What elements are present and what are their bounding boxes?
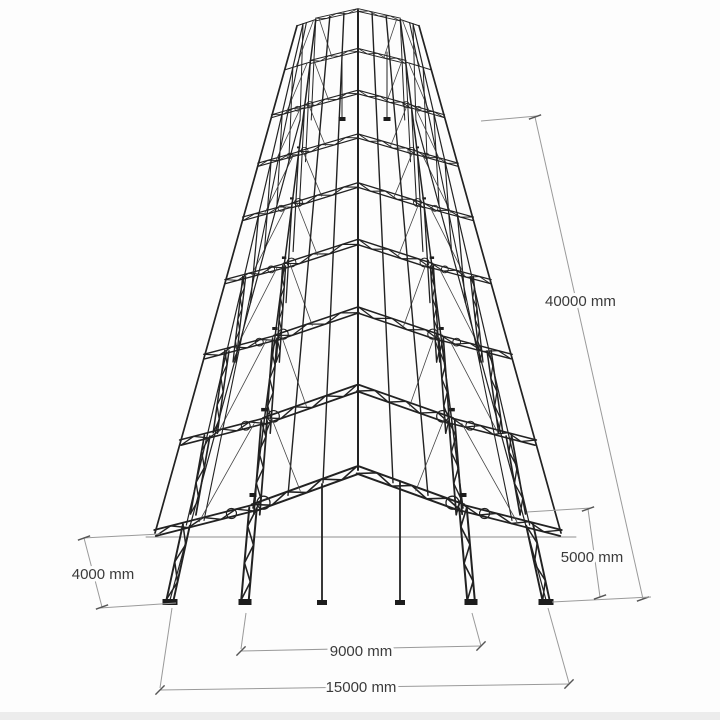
rod-base-plate: [317, 600, 327, 605]
column-cap-plate: [250, 493, 257, 497]
base-plate: [465, 599, 478, 605]
rod-base-plate-far: [384, 117, 391, 121]
ground-strip: [0, 712, 720, 720]
dimension-eave-height-label: 4000 mm: [72, 566, 135, 583]
drawing-background: [0, 0, 720, 720]
dimension-bay-label: 5000 mm: [561, 549, 624, 566]
dimension-length-label: 40000 mm: [545, 293, 616, 310]
rod-base-plate-far: [339, 117, 346, 121]
base-plate: [238, 599, 251, 605]
column-cap-plate: [460, 493, 467, 497]
steel-structure-perspective-drawing: 40000 mm 5000 mm 4000 mm 9000 mm 15000 m…: [0, 0, 720, 720]
rod-base-plate: [395, 600, 405, 605]
technical-drawing-canvas: 40000 mm 5000 mm 4000 mm 9000 mm 15000 m…: [0, 0, 720, 720]
base-plate: [539, 599, 554, 605]
dimension-outer-span-label: 15000 mm: [326, 679, 397, 696]
dimension-inner-span-label: 9000 mm: [330, 643, 393, 660]
